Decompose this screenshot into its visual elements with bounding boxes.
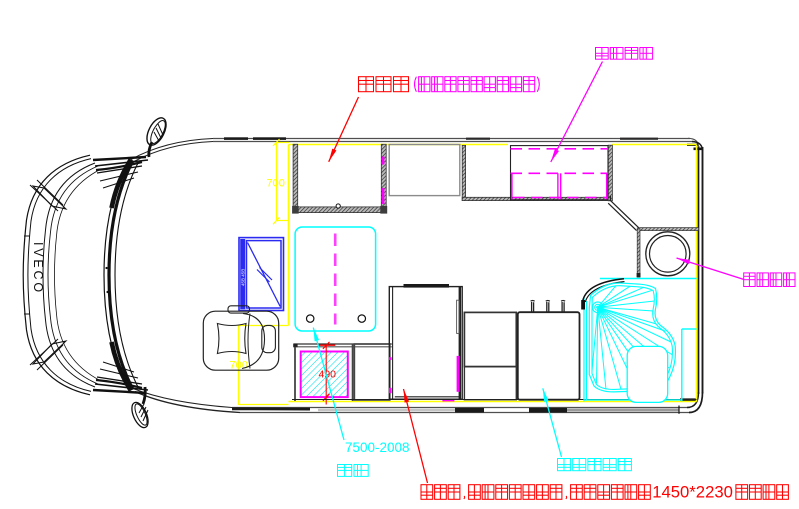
svg-text:1450*2230: 1450*2230 (652, 483, 733, 502)
svg-text:45B 45B: 45B 45B (241, 269, 246, 286)
svg-text:IVECO: IVECO (31, 242, 45, 295)
svg-text:700: 700 (267, 178, 285, 190)
svg-text:7500-2008: 7500-2008 (345, 440, 410, 455)
